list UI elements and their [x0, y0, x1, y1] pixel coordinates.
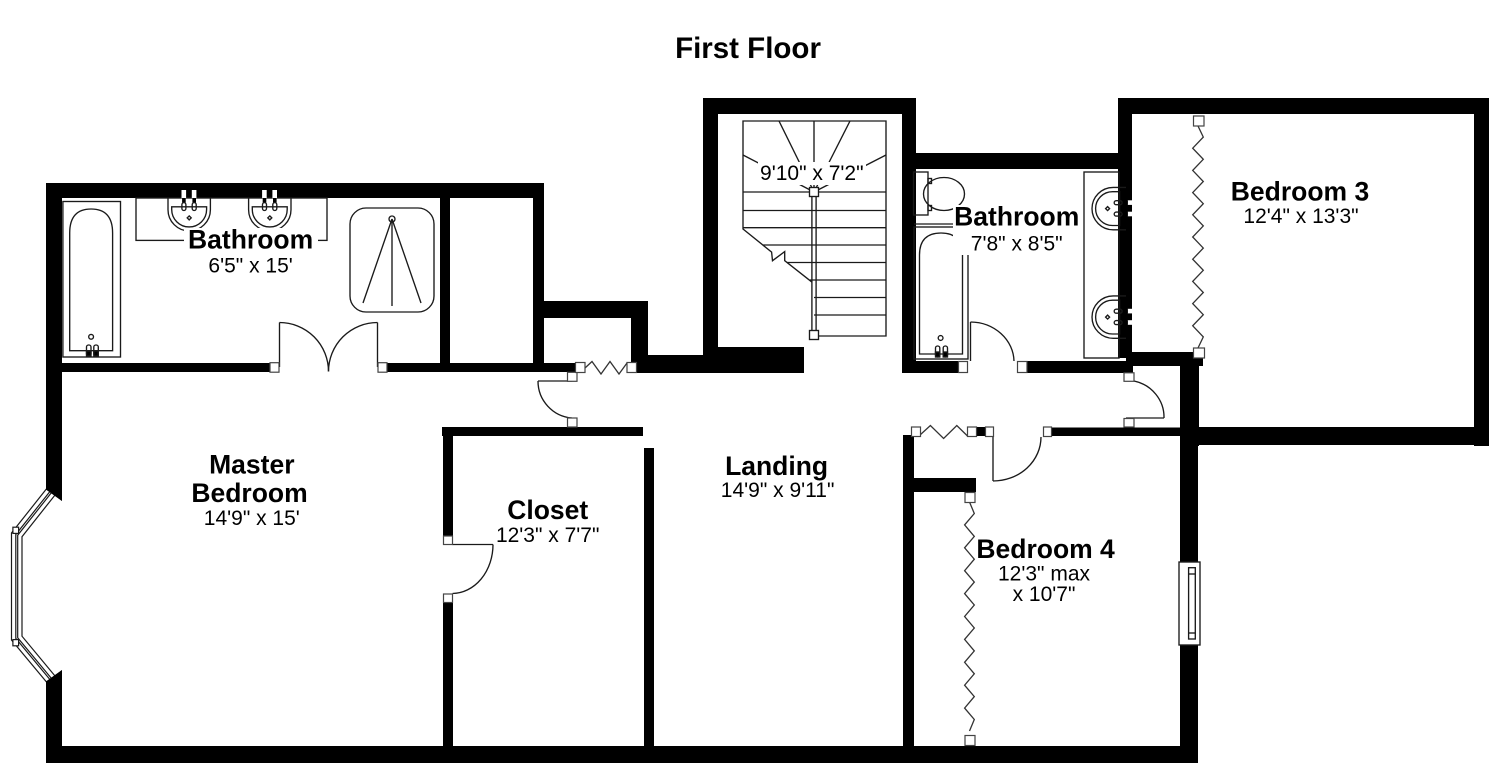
svg-text:Master: Master [209, 450, 294, 480]
svg-text:Bathroom: Bathroom [954, 202, 1079, 232]
svg-text:Bathroom: Bathroom [188, 225, 313, 255]
svg-text:Closet: Closet [507, 495, 588, 525]
svg-text:Bedroom 4: Bedroom 4 [976, 534, 1115, 564]
svg-text:6'5" x 15': 6'5" x 15' [208, 255, 292, 278]
svg-text:12'4" x 13'3": 12'4" x 13'3" [1243, 205, 1358, 228]
svg-text:12'3" x 7'7": 12'3" x 7'7" [496, 524, 600, 547]
svg-text:Bedroom: Bedroom [191, 478, 307, 508]
svg-text:14'9" x 9'11": 14'9" x 9'11" [721, 479, 835, 502]
svg-text:7'8" x 8'5": 7'8" x 8'5" [971, 233, 1063, 256]
svg-text:First Floor: First Floor [675, 32, 821, 65]
svg-text:Landing: Landing [725, 451, 828, 481]
svg-text:Bedroom 3: Bedroom 3 [1231, 177, 1369, 207]
svg-text:9'10" x 7'2": 9'10" x 7'2" [760, 162, 864, 185]
svg-text:x 10'7": x 10'7" [1013, 583, 1076, 606]
svg-text:14'9" x 15': 14'9" x 15' [204, 507, 300, 530]
